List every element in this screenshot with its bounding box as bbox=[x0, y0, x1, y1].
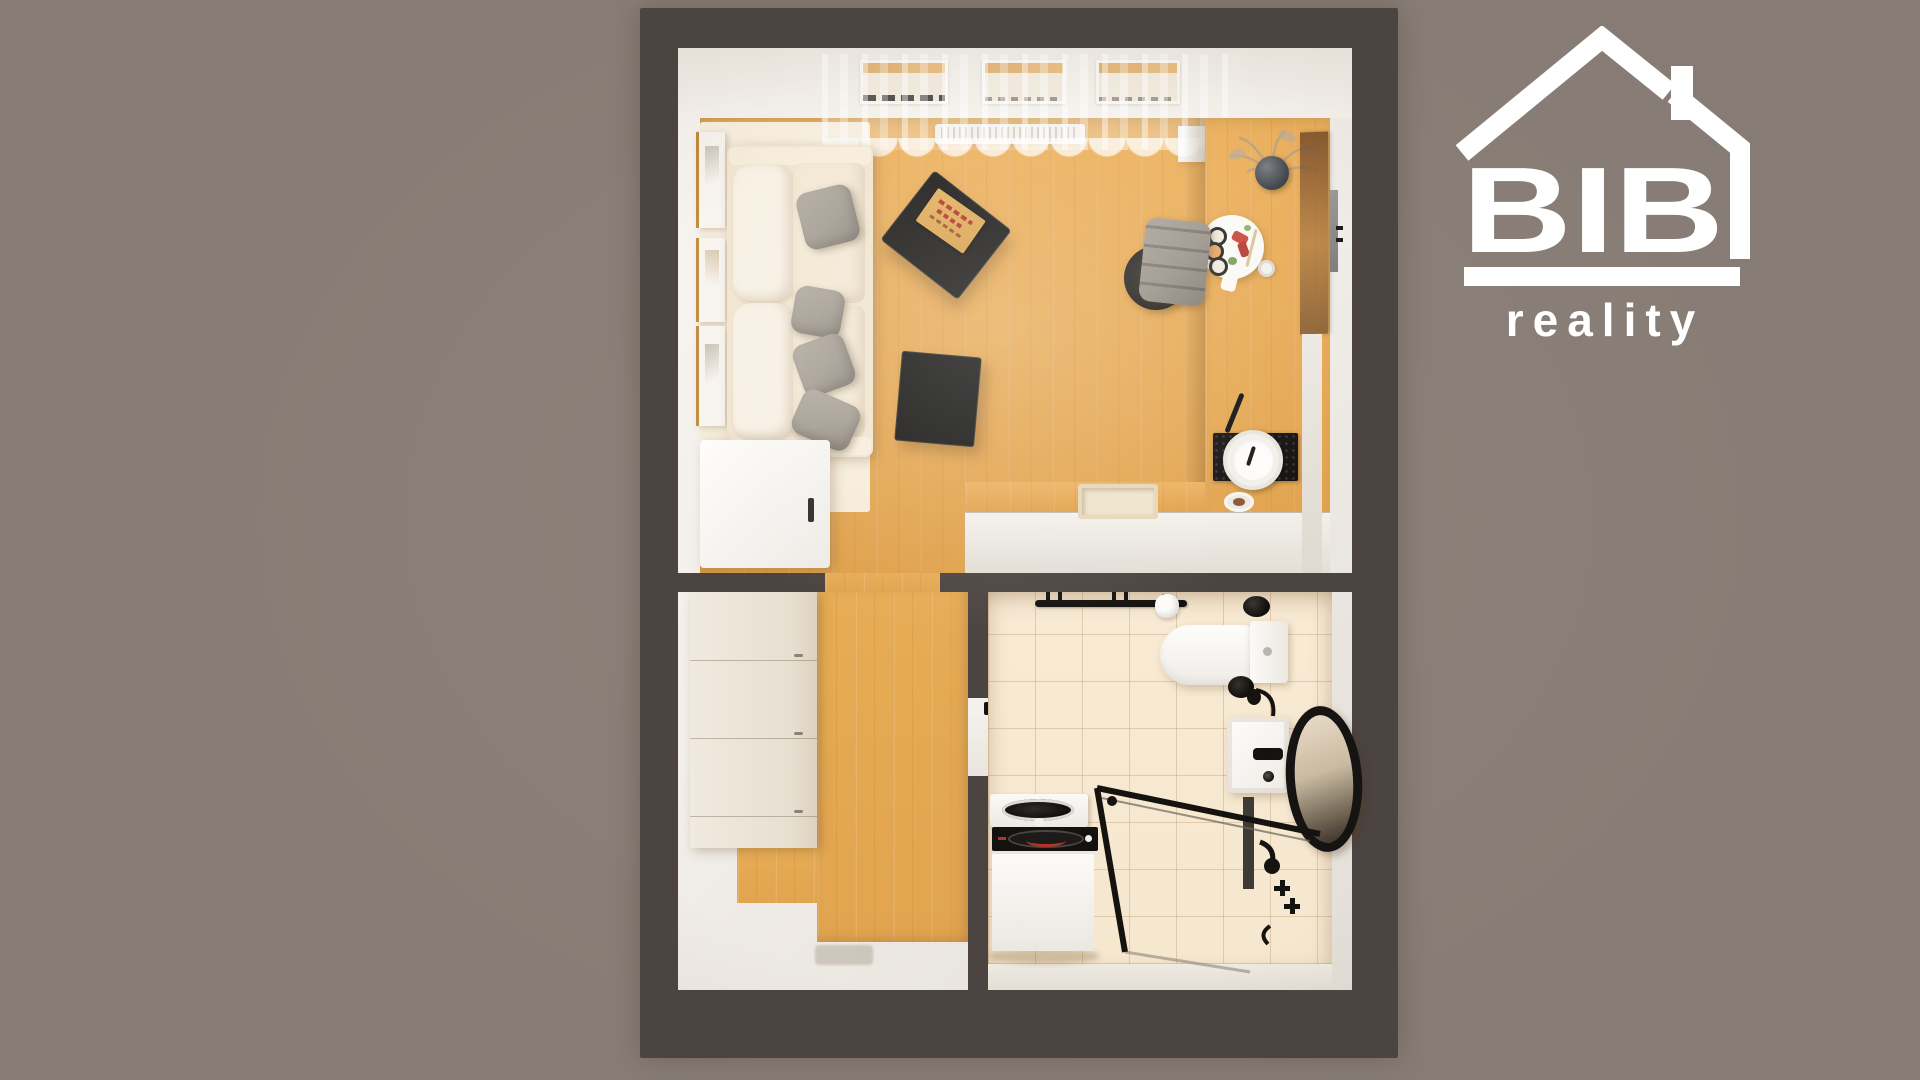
food-on-plate bbox=[1233, 498, 1245, 506]
dryer-knob bbox=[1085, 835, 1092, 842]
tv-bracket-icon bbox=[1336, 226, 1343, 230]
wardrobe-handle bbox=[794, 732, 803, 735]
partition-wall-right bbox=[940, 573, 1352, 592]
refrigerator bbox=[700, 440, 830, 568]
bathroom-left-wall-upper bbox=[968, 592, 988, 698]
vase bbox=[1255, 156, 1289, 190]
logo-brand-text: BIB bbox=[1462, 142, 1724, 278]
curtain-hem-wave bbox=[822, 138, 1240, 164]
walnut-glass-panel bbox=[1300, 132, 1328, 335]
frame-artwork bbox=[705, 146, 719, 206]
washer-knob bbox=[1034, 818, 1044, 826]
dryer-drum-red-accent bbox=[1026, 834, 1066, 847]
shower-glass-frame bbox=[1097, 788, 1320, 972]
cup bbox=[1258, 260, 1275, 277]
wall-frame-1 bbox=[696, 132, 725, 228]
cooking-pot bbox=[1223, 430, 1283, 490]
wall-frame-2 bbox=[696, 238, 725, 322]
dryer-front bbox=[992, 851, 1094, 951]
counter-side-panel bbox=[1302, 334, 1322, 574]
wardrobe-handle bbox=[794, 654, 803, 657]
sofa-back-cushion-1 bbox=[733, 165, 793, 301]
throw-pillow-2 bbox=[789, 284, 847, 340]
dryer-control-top bbox=[992, 827, 1098, 851]
kitchen-cabinet-front bbox=[965, 512, 1330, 575]
plate-with-food bbox=[1224, 492, 1254, 512]
floorplan-render: BIB reality bbox=[0, 0, 1920, 1080]
bathroom-left-wall-lower bbox=[968, 776, 988, 990]
logo-underline-bar bbox=[1464, 267, 1740, 286]
office-chair-seat bbox=[1138, 217, 1212, 307]
shower-fixtures-icon bbox=[1260, 842, 1300, 944]
tv-bracket-icon bbox=[1336, 238, 1343, 242]
brand-logo: BIB reality bbox=[1450, 26, 1750, 356]
washing-machine-top bbox=[990, 794, 1088, 827]
logo-tagline-text: reality bbox=[1506, 294, 1705, 346]
refrigerator-handle bbox=[808, 498, 814, 522]
doorway-floor bbox=[825, 573, 940, 592]
wall-mounted-tv-edge bbox=[1330, 190, 1338, 272]
hallway-floor-patch bbox=[737, 848, 817, 903]
sheer-curtain bbox=[822, 54, 1240, 150]
kitchen-sink bbox=[1078, 484, 1158, 519]
wasabi-garnish bbox=[1228, 257, 1237, 265]
coffee-table-small bbox=[894, 351, 982, 448]
spoon-in-pot bbox=[1246, 446, 1256, 466]
maki-roll bbox=[1209, 257, 1228, 276]
dryer-door-glass bbox=[1008, 830, 1084, 848]
wardrobe-door-seam bbox=[690, 816, 817, 817]
frame-artwork bbox=[705, 250, 719, 302]
entry-mat bbox=[815, 945, 873, 965]
dryer-red-indicator bbox=[998, 837, 1006, 840]
frame-artwork bbox=[705, 344, 719, 406]
hallway-floor bbox=[817, 592, 968, 942]
wall-frame-3 bbox=[696, 326, 725, 426]
towel-ring-icon bbox=[1256, 690, 1273, 716]
sofa-back-cushion-2 bbox=[733, 303, 793, 439]
wardrobe bbox=[690, 592, 817, 848]
wardrobe-door-seam bbox=[690, 660, 817, 661]
wardrobe-door-seam bbox=[690, 738, 817, 739]
partition-wall-left bbox=[678, 573, 825, 592]
wardrobe-handle bbox=[794, 810, 803, 813]
garnish bbox=[1244, 225, 1251, 231]
